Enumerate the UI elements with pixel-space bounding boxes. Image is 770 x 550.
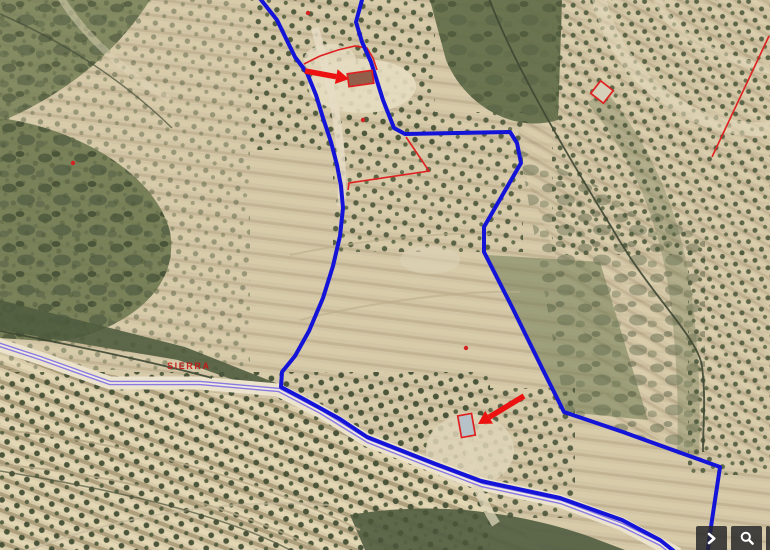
- building-outline-south: [458, 413, 476, 437]
- map-toolbar: [696, 526, 770, 550]
- cadastral-marker: [361, 118, 365, 122]
- cadastral-marker: [71, 161, 75, 165]
- arrow-to-south-building-shaft: [489, 396, 524, 417]
- road-line: [0, 344, 676, 550]
- property-boundary-line: [356, 0, 720, 550]
- road-line-center: [0, 344, 676, 550]
- building-outline-north: [347, 70, 374, 86]
- property-boundary-line: [258, 0, 680, 550]
- map-viewport: SIERRA: [0, 0, 770, 550]
- cadastral-marker: [306, 11, 310, 15]
- cadastral-marker: [464, 346, 468, 350]
- place-label: SIERRA: [167, 361, 211, 371]
- magnifier-icon: [740, 531, 754, 545]
- partial-button[interactable]: [766, 526, 770, 550]
- cadastral-parcel-line: [348, 137, 429, 190]
- building-outline-east: [591, 81, 613, 103]
- pan-right-button[interactable]: [696, 526, 727, 550]
- cadastral-parcel-line: [712, 36, 769, 157]
- map-overlays: [0, 0, 770, 550]
- chevron-right-icon: [706, 532, 717, 545]
- zoom-button[interactable]: [731, 526, 762, 550]
